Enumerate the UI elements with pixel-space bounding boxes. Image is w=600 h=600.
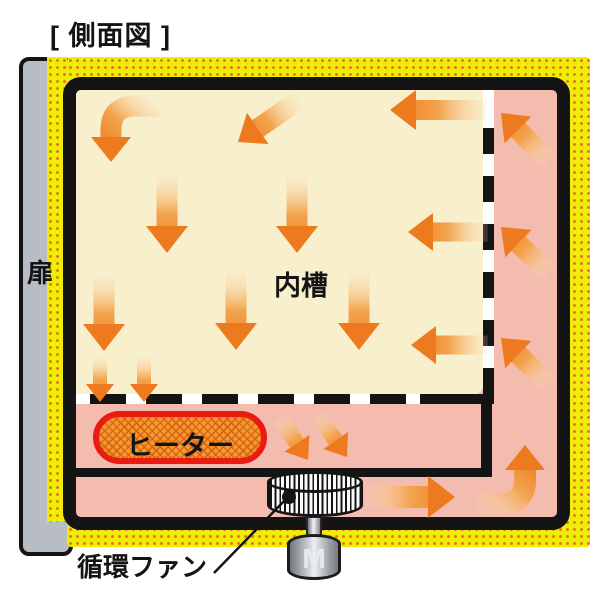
oven-outer-wall: ヒーター (63, 77, 570, 530)
inner-chamber-label: 内槽 (274, 264, 328, 303)
perforated-wall-right (483, 90, 494, 404)
motor-label: M (290, 543, 338, 575)
door-label: 扉 (27, 253, 53, 290)
heater-label: ヒーター (99, 424, 261, 463)
fan-hub-icon (282, 490, 296, 504)
circulation-fan-top (267, 471, 363, 493)
motor-body: M (287, 534, 341, 580)
inner-chamber (76, 90, 483, 394)
side-view-diagram: [ 側面図 ] ヒーター M 扉 内槽 循環ファン (0, 0, 600, 600)
heater-body: ヒーター (93, 411, 267, 464)
heater-compartment-right-wall (481, 394, 492, 477)
diagram-title: [ 側面図 ] (50, 14, 171, 53)
circulation-fan-label: 循環ファン (77, 547, 207, 584)
